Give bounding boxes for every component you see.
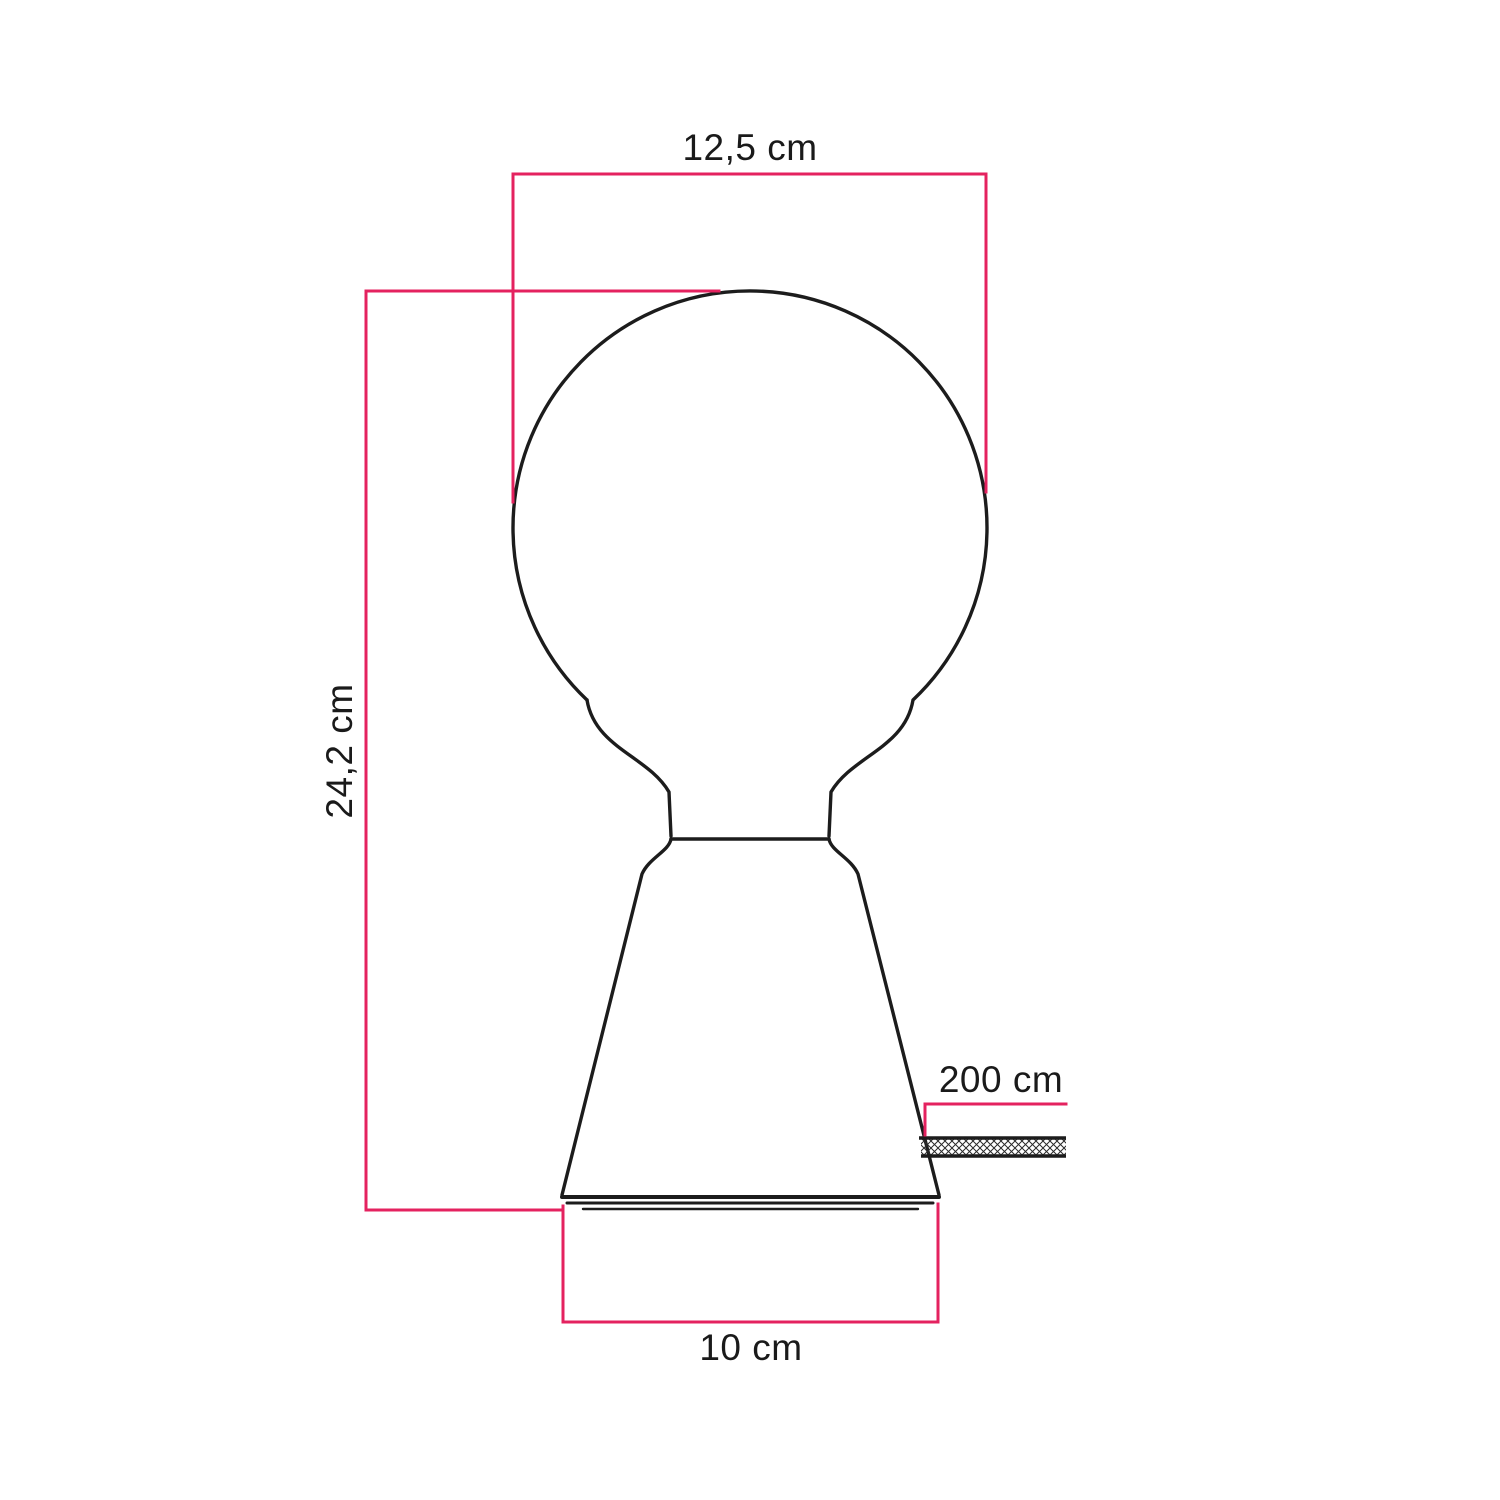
base-width-label: 10 cm [699,1327,802,1368]
total-height-label: 24,2 cm [319,683,360,818]
bulb-diameter-label: 12,5 cm [682,127,817,168]
cable-group [919,1138,1066,1156]
dimension-diagram: 12,5 cm 24,2 cm 200 cm 10 cm [0,0,1500,1500]
cable-length-label: 200 cm [939,1059,1063,1100]
lamp-dimension-svg: 12,5 cm 24,2 cm 200 cm 10 cm [0,0,1500,1500]
cable-hatch-fill [921,1139,1066,1155]
diagram-background [0,0,1500,1500]
